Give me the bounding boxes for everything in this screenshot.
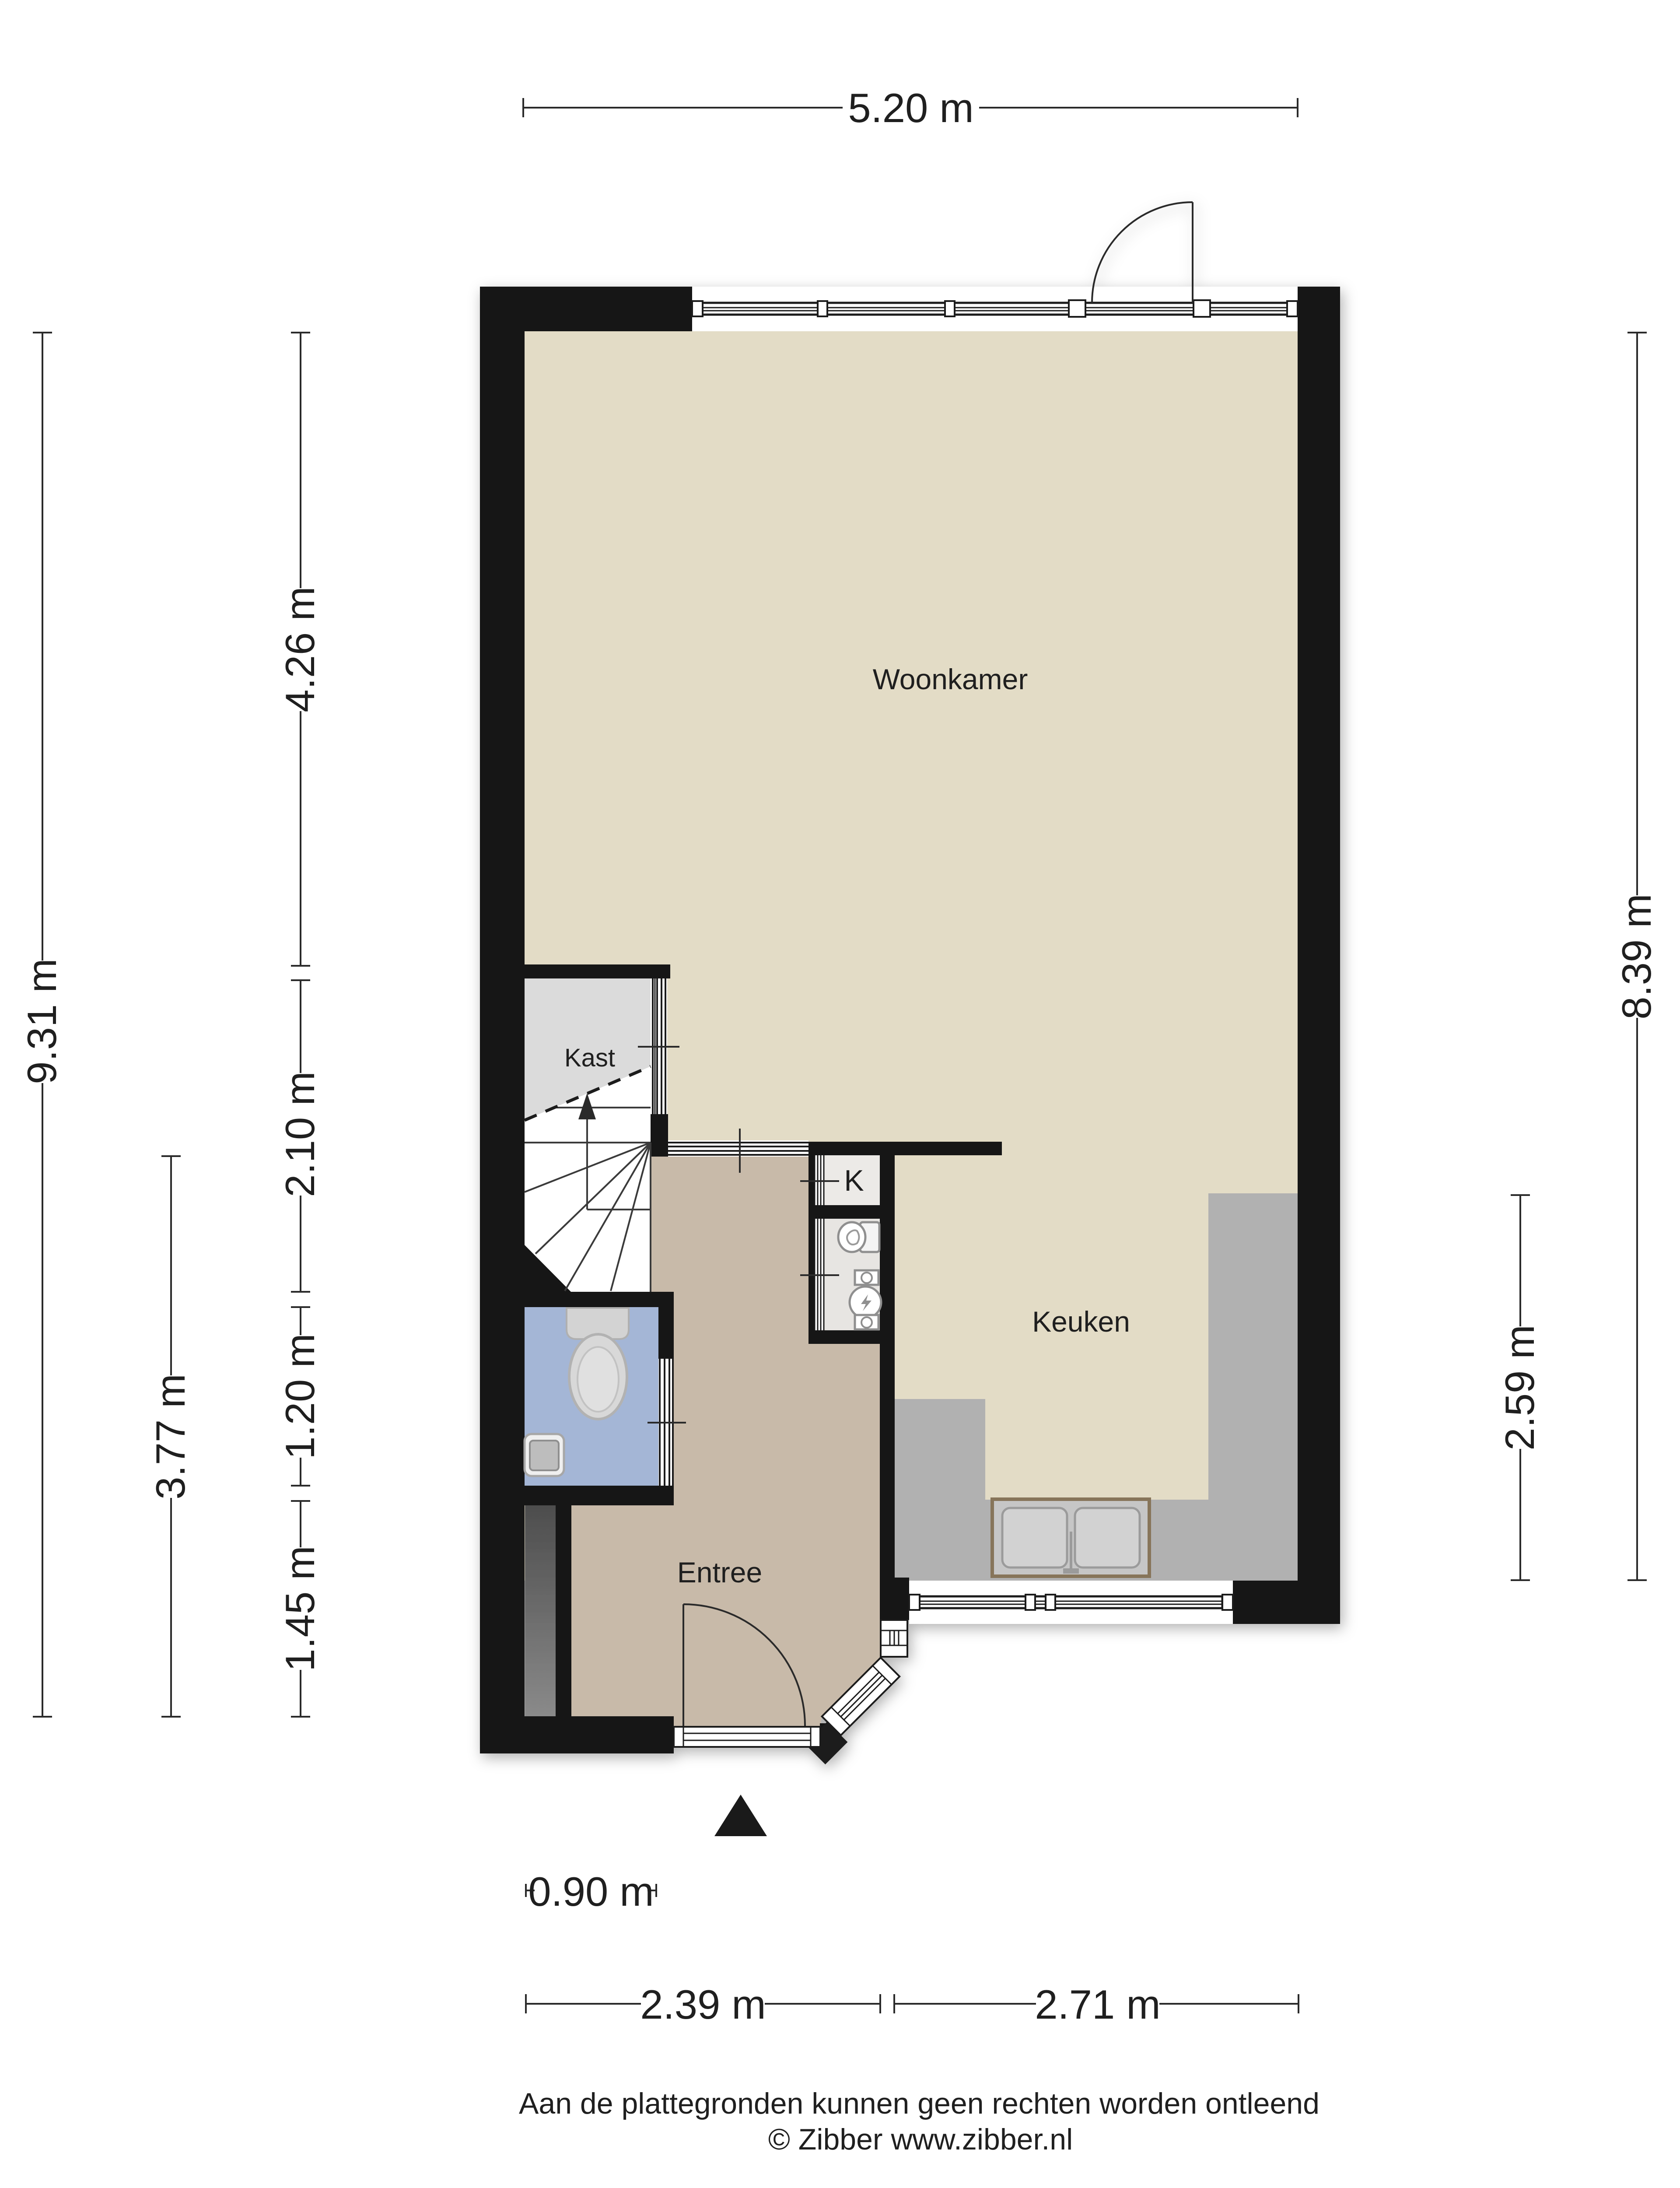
svg-text:2.10 m: 2.10 m xyxy=(277,1071,323,1197)
svg-text:5.20 m: 5.20 m xyxy=(848,85,973,131)
svg-text:Entree: Entree xyxy=(677,1556,762,1588)
svg-text:2.71 m: 2.71 m xyxy=(1035,1981,1160,2027)
svg-text:9.31 m: 9.31 m xyxy=(19,958,65,1084)
svg-text:Woonkamer: Woonkamer xyxy=(873,663,1028,695)
svg-text:4.26 m: 4.26 m xyxy=(277,586,323,712)
svg-text:Keuken: Keuken xyxy=(1032,1305,1130,1338)
svg-text:1.20 m: 1.20 m xyxy=(277,1333,323,1459)
svg-text:3.77 m: 3.77 m xyxy=(147,1374,193,1499)
svg-text:2.59 m: 2.59 m xyxy=(1497,1325,1543,1450)
svg-text:1.45 m: 1.45 m xyxy=(277,1546,323,1671)
svg-text:8.39 m: 8.39 m xyxy=(1613,894,1659,1019)
svg-text:2.39 m: 2.39 m xyxy=(640,1981,766,2027)
svg-text:Kast: Kast xyxy=(564,1044,615,1072)
svg-text:Aan de plattegronden kunnen ge: Aan de plattegronden kunnen geen rechten… xyxy=(519,2087,1319,2120)
svg-text:© Zibber www.zibber.nl: © Zibber www.zibber.nl xyxy=(768,2123,1073,2156)
svg-text:0.90 m: 0.90 m xyxy=(528,1869,654,1914)
svg-text:K: K xyxy=(844,1164,864,1197)
